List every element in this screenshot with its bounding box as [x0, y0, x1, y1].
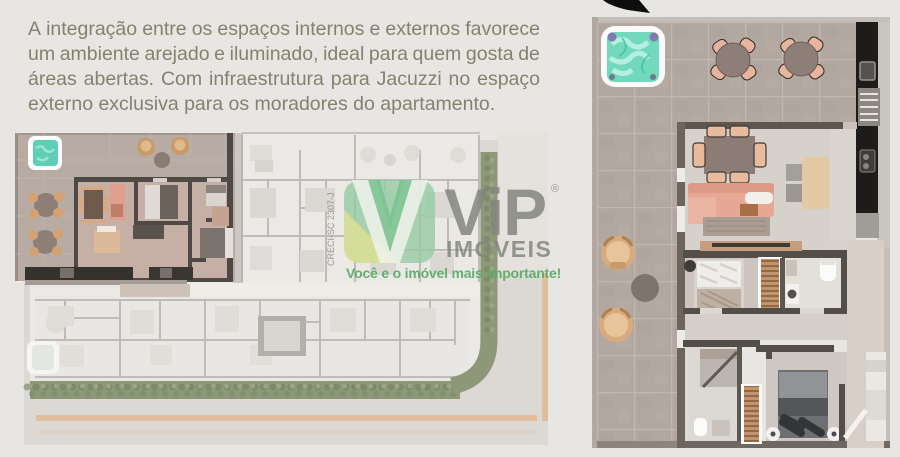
svg-text:IMÓVEIS: IMÓVEIS — [446, 235, 552, 262]
svg-text:Você e o imóvel mais important: Você e o imóvel mais importante! — [346, 265, 561, 281]
svg-text:CRECI-SC 2307-J: CRECI-SC 2307-J — [326, 192, 336, 266]
svg-text:®: ® — [551, 183, 559, 195]
